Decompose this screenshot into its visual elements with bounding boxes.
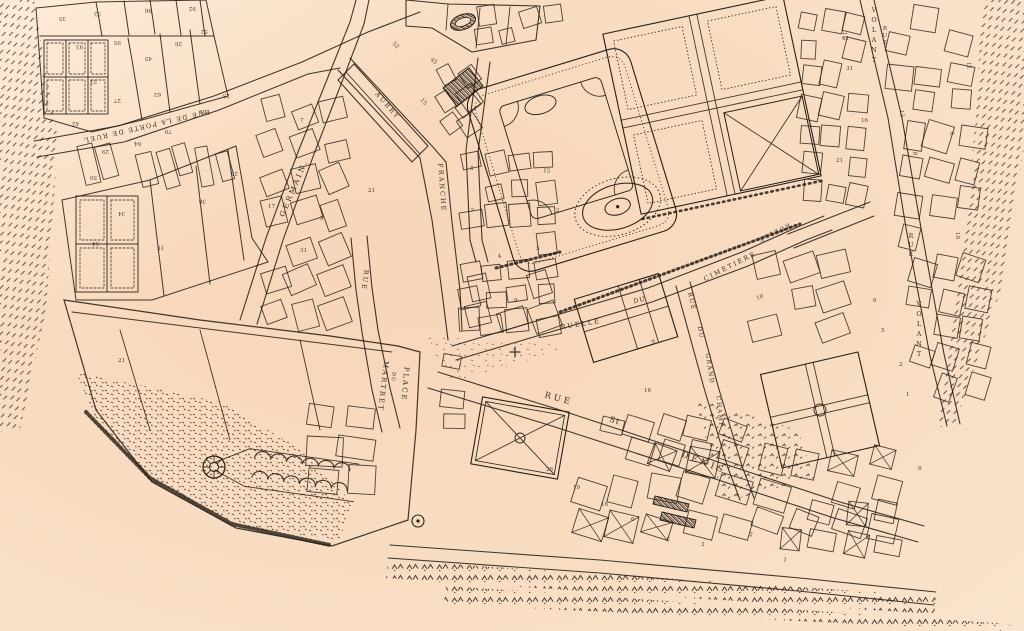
street-label-volant-right: V [916,300,922,308]
parcel-number: 34 [117,210,125,216]
street-label-volant-top: N [871,46,877,54]
parcel-number: 26 [174,40,182,46]
parcel-number: 31 [300,248,307,254]
map-scan: 3532969293954526525762274229647955235034… [0,0,1024,631]
parcel-number: 35 [58,15,66,21]
parcel-number: 21 [368,188,375,194]
parcel-number: 54 [91,240,99,246]
parcel-number: 9 [514,298,518,304]
parcel-number: 96 [144,7,152,13]
street-label-place-du: DU [390,372,397,383]
street-label-volant-top: L [872,26,877,34]
parcel-number: 32 [93,10,101,16]
parcel-number: 3 [536,246,540,252]
parcel-number: 5 [881,328,885,334]
small-tower-dot [416,519,419,522]
parcel-number: 16 [601,502,609,508]
parcel-number: 21 [836,158,843,164]
street-label-volant-right: N [916,340,922,348]
parcel-number: 26 [546,467,554,473]
street-label-volant-top: O [871,16,876,24]
parcel-number: 19 [573,485,581,491]
street-label-volant-right-rue: E [909,251,913,258]
parcel-number: 57 [89,78,97,84]
parcel-number: 45 [144,55,152,61]
parcel-number: 17 [268,204,276,210]
parcel-number: 27 [113,97,121,103]
parcel-number: 2 [899,362,903,368]
parcel-number: 6 [631,517,635,523]
parcel-number: 16 [861,118,869,124]
parcel-number: 95 [113,39,121,45]
parcel-number: 9 [320,216,324,222]
street-label-volant-right-rue: U [908,242,913,249]
parcel-number: 16 [644,388,652,394]
parcel-number: 25 [230,170,238,176]
parcel-number: 3 [701,542,705,548]
parcel-number: 15 [841,34,849,40]
parcel-number: 6 [873,298,877,304]
street-label-volant-right: L [917,320,922,328]
parcel-number: 31 [846,66,853,72]
street-label-volant-right-rue: R [909,233,914,240]
parcel-number: 10 [954,232,960,240]
parcel-number: 64 [133,140,141,146]
street-label-volant-top-rue: U [883,33,888,39]
parcel-number: 12 [965,62,972,70]
parcel-number: 79 [164,128,172,134]
parcel-number: 1 [906,392,910,398]
street-label-volant-right: T [917,350,922,358]
parcel-number: 62 [153,91,161,97]
parcel-number: 52 [200,28,208,34]
street-label-volant-right: A [916,330,922,338]
parcel-number: 42 [71,120,79,126]
parcel-number: 36 [198,197,206,204]
town-plan-svg: 3532969293954526525762274229647955235034… [0,0,1024,631]
parcel-number: 23 [222,92,230,98]
parcel-number: 2 [556,208,560,214]
parcel-number: 21 [118,358,125,364]
street-label-volant-top: V [871,6,877,14]
parcel-number: 5 [470,166,474,172]
parcel-number: 93 [75,43,83,49]
parcel-number: 13 [898,110,905,118]
parcel-number: 29 [101,148,109,154]
parcel-number: 92 [188,5,196,11]
street-label-volant-right: O [916,310,921,318]
parcel-number: 15 [543,168,551,175]
street-label-volant-top: T [872,56,877,64]
street-label-volant-top: A [871,36,877,44]
parcel-number: 31 [157,246,164,252]
parcel-number: 50 [89,174,97,180]
street-label-volant-top-rue: E [883,40,887,46]
parcel-number: 6 [918,466,922,472]
parcel-number: 7 [300,118,304,124]
